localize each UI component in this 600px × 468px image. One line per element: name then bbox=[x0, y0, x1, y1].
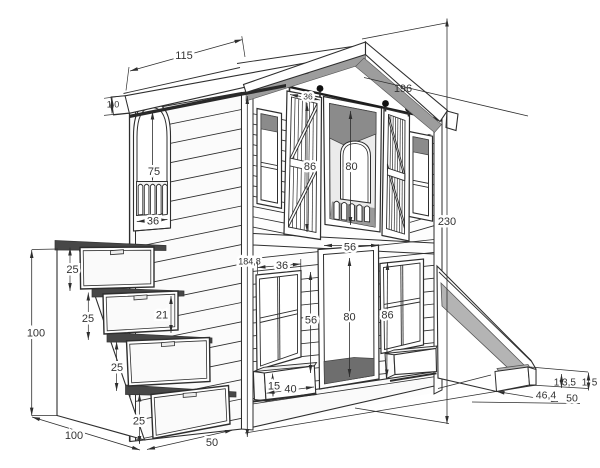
svg-text:3,5: 3,5 bbox=[562, 378, 576, 389]
svg-text:0: 0 bbox=[114, 100, 119, 110]
svg-text:56: 56 bbox=[305, 315, 317, 327]
svg-text:25: 25 bbox=[66, 264, 78, 276]
svg-text:86: 86 bbox=[381, 310, 393, 322]
svg-text:50: 50 bbox=[206, 437, 218, 449]
svg-text:25: 25 bbox=[82, 313, 94, 325]
svg-text:80: 80 bbox=[345, 161, 357, 173]
svg-text:230: 230 bbox=[438, 216, 456, 228]
svg-text:86: 86 bbox=[304, 161, 316, 173]
svg-text:100: 100 bbox=[27, 328, 45, 340]
svg-text:46,4: 46,4 bbox=[536, 390, 557, 402]
svg-text:25: 25 bbox=[133, 416, 145, 428]
svg-text:1: 1 bbox=[107, 100, 112, 110]
svg-text:1: 1 bbox=[554, 378, 560, 389]
svg-text:36: 36 bbox=[276, 260, 288, 272]
svg-text:56: 56 bbox=[344, 242, 356, 254]
svg-text:115: 115 bbox=[175, 50, 193, 62]
svg-text:25: 25 bbox=[111, 362, 123, 374]
svg-text:196: 196 bbox=[394, 83, 412, 95]
svg-text:21: 21 bbox=[156, 310, 168, 322]
svg-text:36: 36 bbox=[147, 216, 159, 228]
svg-text:1: 1 bbox=[582, 378, 588, 389]
svg-text:50: 50 bbox=[566, 393, 578, 405]
svg-text:36: 36 bbox=[303, 92, 313, 102]
svg-text:75: 75 bbox=[148, 166, 160, 178]
svg-text:5: 5 bbox=[592, 378, 598, 389]
svg-text:80: 80 bbox=[343, 312, 355, 324]
svg-text:40: 40 bbox=[284, 383, 296, 395]
svg-text:100: 100 bbox=[65, 430, 83, 442]
